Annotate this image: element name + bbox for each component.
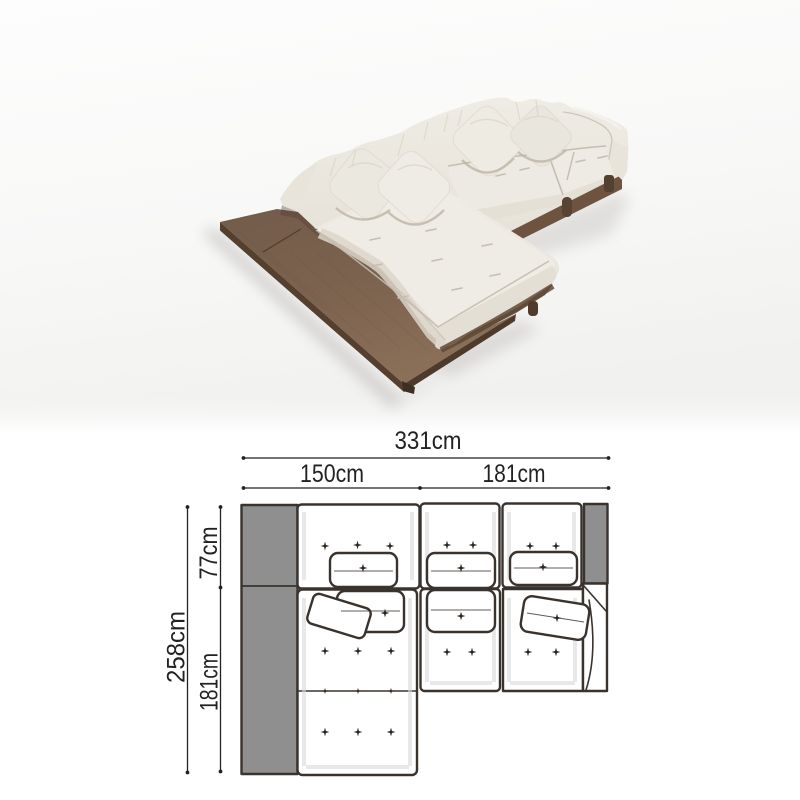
svg-text:181cm: 181cm	[483, 460, 546, 488]
svg-text:77cm: 77cm	[195, 527, 223, 580]
svg-text:181cm: 181cm	[196, 653, 224, 711]
svg-text:258cm: 258cm	[163, 611, 191, 683]
svg-text:331cm: 331cm	[395, 427, 462, 455]
svg-text:150cm: 150cm	[300, 460, 364, 488]
